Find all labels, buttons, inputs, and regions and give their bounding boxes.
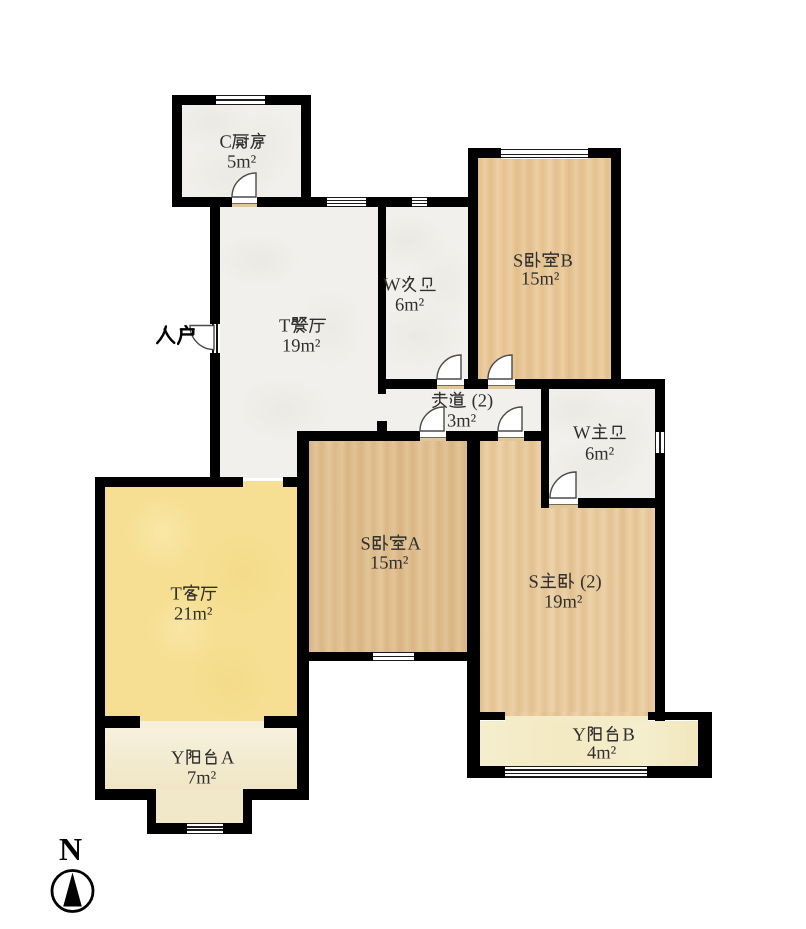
svg-text:21m²: 21m² bbox=[174, 605, 213, 625]
svg-text:(2): (2) bbox=[467, 392, 493, 412]
svg-text:B: B bbox=[561, 252, 573, 272]
svg-text:A: A bbox=[408, 535, 422, 555]
svg-text:T: T bbox=[279, 317, 290, 337]
svg-text:19m²: 19m² bbox=[282, 337, 321, 357]
svg-text:N: N bbox=[59, 831, 82, 867]
svg-text:S: S bbox=[361, 535, 371, 555]
svg-text:15m²: 15m² bbox=[370, 554, 409, 574]
svg-text:5m²: 5m² bbox=[227, 153, 257, 173]
svg-text:B: B bbox=[623, 726, 635, 746]
svg-text:6m²: 6m² bbox=[585, 445, 615, 465]
svg-text:3m²: 3m² bbox=[447, 412, 477, 432]
svg-text:W: W bbox=[383, 276, 401, 296]
svg-text:T: T bbox=[171, 585, 182, 605]
svg-text:(2): (2) bbox=[576, 573, 602, 593]
svg-text:S: S bbox=[513, 252, 523, 272]
svg-text:A: A bbox=[221, 749, 235, 769]
svg-text:Y: Y bbox=[171, 749, 184, 769]
svg-text:6m²: 6m² bbox=[395, 296, 425, 316]
svg-text:C: C bbox=[220, 133, 232, 153]
svg-text:S: S bbox=[529, 573, 539, 593]
svg-text:4m²: 4m² bbox=[587, 744, 617, 764]
svg-text:19m²: 19m² bbox=[544, 593, 583, 613]
svg-text:15m²: 15m² bbox=[521, 270, 560, 290]
svg-text:7m²: 7m² bbox=[187, 769, 217, 789]
svg-text:W: W bbox=[573, 424, 591, 444]
svg-text:Y: Y bbox=[573, 726, 586, 746]
